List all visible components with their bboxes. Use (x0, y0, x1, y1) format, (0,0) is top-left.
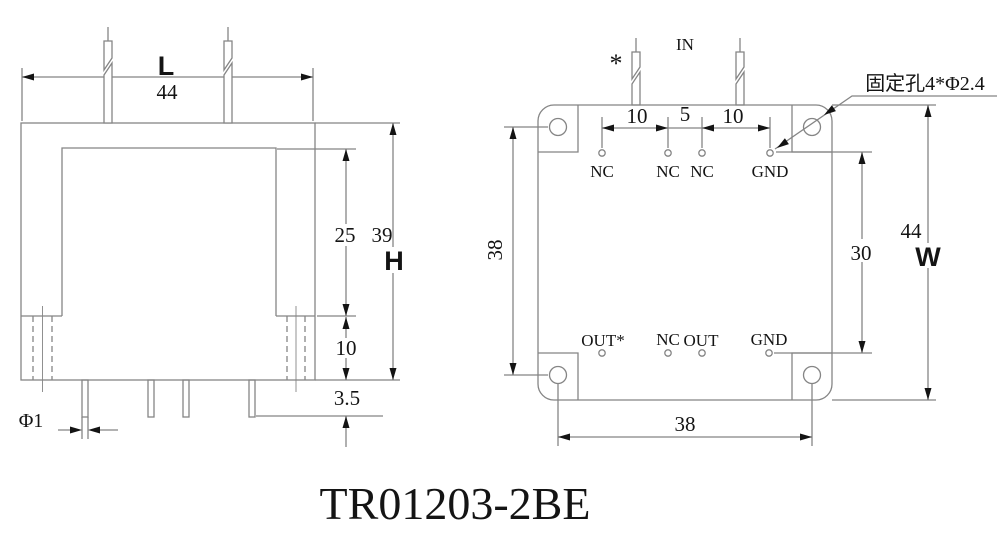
hole-centerlines (43, 306, 297, 392)
arrowhead-left (702, 125, 714, 132)
top-view-pin-1 (632, 38, 640, 105)
pad-label-gnd-top: GND (752, 162, 789, 181)
pad-nc-2 (665, 150, 671, 156)
mounting-hole-note: 固定孔4*Φ2.4 (865, 72, 985, 95)
dim-pad-span-vertical: 30 (851, 241, 872, 265)
dim-body-height-label: H (384, 246, 404, 276)
arrowhead-down (859, 341, 866, 353)
mounting-hole-top-left (550, 119, 567, 136)
dim-3-5-lines (256, 416, 383, 447)
top-view-pin-2 (736, 38, 744, 105)
dim-38v-lines (504, 127, 548, 375)
arrowhead-left (558, 434, 570, 441)
pad-label-nc-2: NC (656, 162, 680, 181)
pad-label-nc-3: NC (690, 162, 714, 181)
dim-depth-value: 44 (901, 219, 923, 243)
dim-body-height-value: 39 (372, 223, 393, 247)
bottom-row-pads (599, 350, 772, 356)
arrowhead-down (390, 368, 397, 380)
arrowhead-up (343, 149, 350, 161)
arrowhead-up (343, 416, 350, 428)
dim-hole-span-vertical: 38 (483, 240, 507, 261)
arrowhead-left (22, 74, 34, 81)
pin-lower-segment (104, 63, 112, 123)
dim-pitch-left: 10 (627, 104, 648, 128)
arrowhead-up (859, 152, 866, 164)
dim-pitch-mid: 5 (680, 102, 691, 126)
front-core-window (62, 148, 276, 316)
dim-phi1-lines (58, 417, 118, 439)
arrowhead-up (925, 105, 932, 117)
arrowhead-up (510, 127, 517, 139)
arrowhead-down (925, 388, 932, 400)
arrowhead-up (343, 317, 350, 329)
mounting-hole-bottom-left (550, 367, 567, 384)
bottom-pin (183, 380, 189, 417)
transformer-drawing-page: L 44 25 39 H 10 3.5 Φ1 IN * 固定孔4*Φ2.4 10… (0, 0, 1000, 536)
arrowhead-down (510, 363, 517, 375)
pad-label-nc-4: NC (656, 330, 680, 349)
polarity-mark: * (610, 49, 623, 78)
pad-gnd-top (767, 150, 773, 156)
dim-pitch-right: 10 (723, 104, 744, 128)
corner-tab-lines (538, 105, 832, 400)
dim-depth-label: W (915, 242, 941, 272)
pad-out (699, 350, 705, 356)
pin-lower-segment (224, 63, 232, 123)
bottom-pin (82, 380, 88, 417)
hidden-hole-dashed-lines (33, 316, 305, 380)
arrowhead-down (343, 368, 350, 380)
pad-nc-4 (665, 350, 671, 356)
dim-width-label: L (158, 51, 175, 81)
front-top-pin-1 (104, 27, 112, 123)
front-bottom-pins (82, 380, 255, 417)
pad-label-gnd-bottom: GND (751, 330, 788, 349)
pad-gnd-bottom (766, 350, 772, 356)
top-body-outline (538, 105, 832, 400)
pad-nc-3 (699, 150, 705, 156)
dim-window-height: 25 (335, 223, 356, 247)
dim-width-value: 44 (157, 80, 179, 104)
dim-pin-diameter: Φ1 (19, 410, 44, 432)
pad-label-nc-1: NC (590, 162, 614, 181)
dim-standoff-3-5 (256, 416, 383, 447)
pad-label-out: OUT (684, 331, 720, 350)
arrowhead-left (88, 427, 100, 434)
leader-line (775, 96, 997, 149)
top-row-pads (599, 150, 773, 156)
drawing-canvas: L 44 25 39 H 10 3.5 Φ1 IN * 固定孔4*Φ2.4 10… (0, 0, 1000, 536)
pad-out-star (599, 350, 605, 356)
arrowhead-right (758, 125, 770, 132)
dim-hole-span-horizontal: 38 (675, 412, 696, 436)
arrowhead-right (656, 125, 668, 132)
arrowhead-up (390, 123, 397, 135)
dim-standoff: 3.5 (334, 386, 360, 410)
dim-lower-height: 10 (336, 336, 357, 360)
part-number-title: TR01203-2BE (320, 478, 591, 529)
front-body-outline (21, 123, 315, 380)
dim-pin-diameter-phi1 (58, 417, 118, 439)
mounting-hole-leader (775, 96, 997, 149)
pad-label-out-star: OUT* (581, 331, 624, 350)
bottom-pin (249, 380, 255, 417)
arrowhead-left (602, 125, 614, 132)
arrowhead-leader-2 (777, 138, 789, 148)
arrowhead-down (343, 304, 350, 316)
dim-hole-span-vertical-38 (504, 127, 548, 375)
pad-nc-1 (599, 150, 605, 156)
front-top-pin-2 (224, 27, 232, 123)
bottom-pin (148, 380, 154, 417)
mounting-hole-bottom-right (804, 367, 821, 384)
arrowhead-right (301, 74, 313, 81)
arrowhead-right (70, 427, 82, 434)
arrowhead-right (800, 434, 812, 441)
input-label: IN (676, 35, 694, 54)
